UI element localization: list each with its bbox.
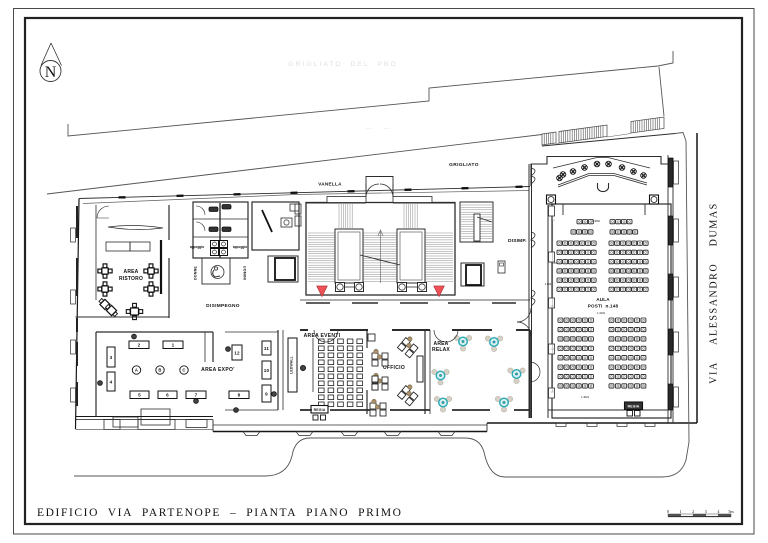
svg-text:0: 0: [667, 509, 669, 514]
svg-text:UOMINI: UOMINI: [243, 266, 247, 280]
svg-text:1.024: 1.024: [545, 282, 552, 286]
svg-text:1.4023: 1.4023: [581, 395, 589, 399]
svg-text:1.70: 1.70: [551, 261, 557, 265]
svg-text:AULA: AULA: [596, 297, 610, 302]
svg-text:8: 8: [238, 393, 241, 398]
svg-text:1: 1: [172, 343, 175, 348]
svg-text:5: 5: [138, 393, 141, 398]
svg-text:POSTI n.148: POSTI n.148: [588, 304, 619, 309]
svg-text:4.4050: 4.4050: [592, 219, 600, 223]
svg-text:appoggio: appoggio: [190, 245, 204, 249]
svg-text:A: A: [135, 368, 138, 373]
svg-text:VANELLA: VANELLA: [318, 182, 342, 187]
svg-text:GRIGLIATO: GRIGLIATO: [449, 162, 479, 168]
svg-text:11: 11: [264, 346, 270, 351]
svg-text:3: 3: [110, 355, 113, 360]
svg-text:AREA EXPO’: AREA EXPO’: [201, 367, 235, 373]
svg-text:— —: — —: [366, 126, 390, 132]
svg-text:10: 10: [264, 368, 270, 373]
svg-text:N: N: [45, 64, 57, 81]
svg-text:5m: 5m: [728, 509, 734, 514]
svg-text:DONNE: DONNE: [194, 266, 198, 280]
svg-text:RELAX: RELAX: [432, 347, 450, 353]
svg-text:6: 6: [166, 393, 169, 398]
svg-text:3: 3: [705, 509, 707, 514]
svg-text:REGIA: REGIA: [628, 405, 640, 409]
svg-text:REGIA: REGIA: [314, 408, 326, 412]
svg-text:DISIMPEGNO: DISIMPEGNO: [206, 303, 240, 309]
svg-text:GRIGLIATO DEL PBO: GRIGLIATO DEL PBO: [288, 61, 398, 68]
svg-text:C: C: [182, 368, 185, 373]
svg-text:B: B: [158, 368, 161, 373]
svg-text:7: 7: [195, 393, 198, 398]
svg-text:AREA: AREA: [124, 269, 139, 275]
svg-text:EDIFICIO VIA PARTENOPE – P: EDIFICIO VIA PARTENOPE – PIANTA PIANO PR…: [37, 507, 403, 519]
svg-text:12: 12: [234, 350, 240, 355]
svg-text:1: 1: [680, 509, 682, 514]
svg-text:DISIMP.: DISIMP.: [508, 238, 527, 244]
svg-text:RISTORO: RISTORO: [119, 276, 143, 282]
svg-text:2: 2: [692, 509, 694, 514]
svg-text:1.1004: 1.1004: [597, 311, 605, 315]
svg-text:appoggio: appoggio: [233, 245, 247, 249]
svg-text:4: 4: [110, 379, 113, 384]
svg-text:VIA ALESSANDRO DUMAS: VIA ALESSANDRO DUMAS: [709, 202, 720, 384]
svg-text:LEDWALL: LEDWALL: [290, 356, 294, 374]
svg-text:9: 9: [265, 391, 268, 396]
svg-text:2: 2: [138, 343, 141, 348]
